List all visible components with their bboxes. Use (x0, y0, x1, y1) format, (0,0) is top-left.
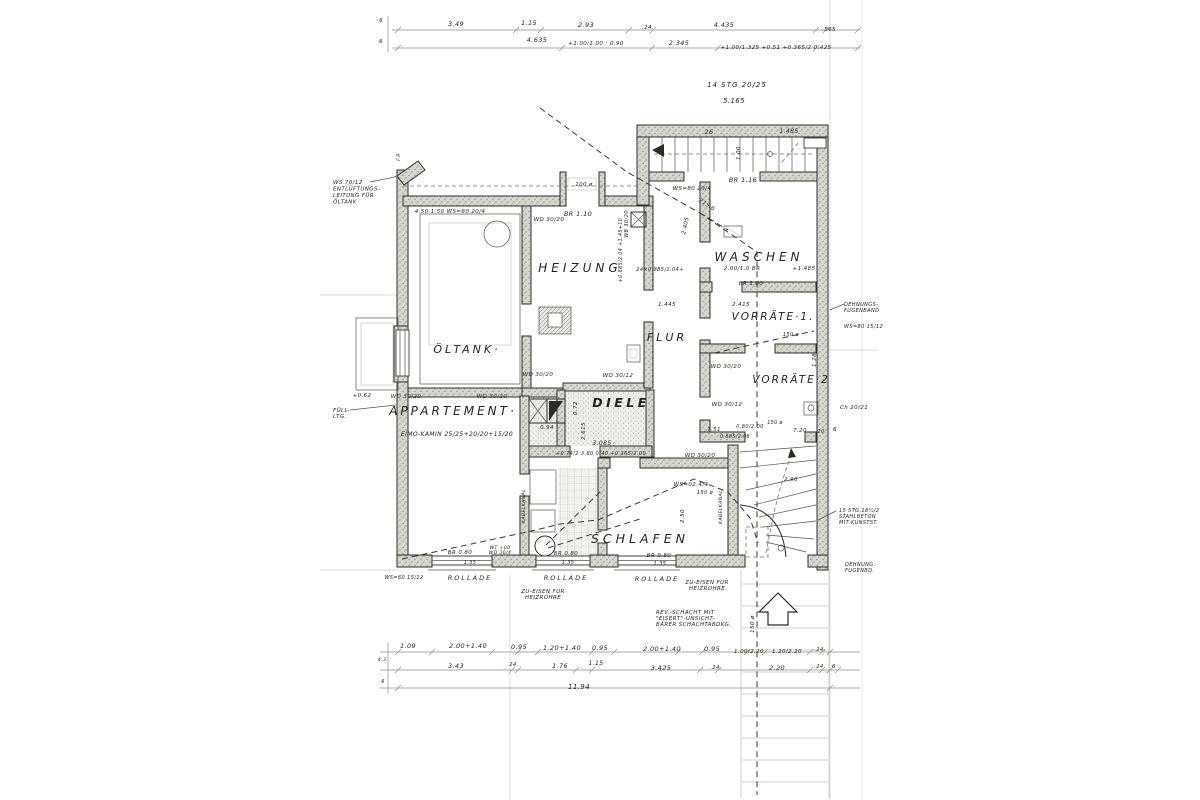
annotation-text: 4.50·1.50 WS=80 20/4 (415, 209, 486, 215)
annotation-text: 100 ø (575, 182, 593, 188)
annotation-text: 4.635 (527, 36, 548, 44)
note-kamin: EIMO-KAMIN 25/25+20/20+15/20 (401, 431, 513, 438)
bath-fixtures (530, 470, 556, 556)
room-label-flur: FLUR (647, 331, 687, 344)
annotation-text: 2.50 (680, 509, 686, 523)
annotation-text: DEHNUNG.FUGENBD. (845, 562, 876, 574)
annotation-text: .24. (710, 665, 721, 671)
room-label-oeltank: ÖLTANK· (433, 343, 500, 356)
annotation-text: WD 30/12 (712, 402, 743, 408)
annotation-text: 2.90 (784, 477, 798, 483)
annotation-text: 1.35 (562, 560, 575, 566)
annotation-text: .24. (814, 664, 825, 670)
annotation-text: 0.885/2.08 (720, 434, 750, 440)
annotation-text: 2.345 (669, 39, 690, 47)
note-zueisen-2: ZU-EISEN FURHEIZROHRE (684, 580, 729, 592)
room-label-vorraete-1: VORRÄTE·1. (732, 310, 815, 323)
annotation-text: 2.405 (681, 216, 691, 235)
annotation-text: +0.74/2 3.80 0.40 +0.365/2.00 (556, 451, 646, 457)
scanned-floor-plan-page: HEIZUNGWASCHENVORRÄTE·1.VORRÄTE·2FLURDIE… (0, 0, 1200, 800)
annotation-text: 2.20 (769, 664, 785, 672)
annotation-text: .20. (816, 429, 827, 435)
annotation-text: 1.35 (464, 560, 477, 566)
annotation-text: 3.425 (651, 664, 672, 672)
note-stair-right: 15 STG.18½/2STAHLBETONMIT KUNSTST. (839, 507, 880, 526)
annotation-text: 3.43 (448, 662, 464, 670)
room-label-diele: DIELE (592, 395, 650, 410)
annotation-text: +1.00/1.00 : 0.90 (568, 41, 623, 47)
annotation-text: 1.28 (812, 353, 818, 367)
annotation-text: 1.445 (658, 302, 676, 308)
annotation-text: 0.95 (592, 644, 608, 652)
annotation-text: 7.51 (707, 427, 721, 433)
room-label-heizung: HEIZUNG (538, 261, 621, 275)
annotation-text: 150 ø (697, 490, 714, 496)
flur-cabinet (627, 345, 640, 362)
shower (530, 470, 556, 504)
annotation-text: 26 (704, 128, 713, 136)
floor-drain-box (804, 402, 818, 415)
annotation-text: WD 30/20 (685, 453, 716, 459)
annotation-text: BR 0.80 (554, 551, 578, 557)
annotation-text: WD 30/20 (534, 217, 565, 223)
annotation-text: 6 (833, 427, 837, 433)
annotation-text: WD 30/20 (711, 364, 742, 370)
annotation-text: 6 (379, 18, 383, 24)
annotation-text: 3.085 (592, 440, 611, 447)
annotation-text: WS=80 20/4 (673, 186, 712, 192)
annotation-layer: HEIZUNGWASCHENVORRÄTE·1.VORRÄTE·2FLURDIE… (333, 18, 883, 691)
annotation-text: 2.93 (578, 21, 594, 29)
annotation-text: 24×0.885/2.04+ (636, 267, 683, 273)
annotation-text: WB 30/20 (624, 210, 630, 238)
oil-tank (420, 214, 520, 384)
annotation-text: WS=60 15/12 (384, 575, 423, 581)
annotation-text: .24. (814, 647, 825, 653)
note-rev-schacht: REV.-SCHACHT MIT"EISERT"-UNSICHT-BARER S… (656, 610, 731, 628)
room-label-waschen: WASCHEN (714, 250, 803, 264)
annotation-text: BR 1.00 (739, 281, 763, 287)
annotation-text: 6 (379, 39, 383, 45)
annotation-text: +1.00/1.325 +0.51 +0.365/2 0.425 (721, 45, 832, 51)
annotation-text: +0.885/2.04 +1.45+10 (618, 218, 624, 282)
annotation-text: BR 1.16 (729, 176, 757, 184)
note-fuell-ltg: FÜLL-LTG. (333, 407, 350, 420)
annotation-text: .24. (507, 662, 518, 668)
annotation-text: 1.15 (589, 660, 604, 667)
boiler (539, 307, 571, 334)
annotation-text: KABELKANAL (521, 489, 527, 523)
entrance-arrow (759, 593, 797, 625)
room-label-appartement: APPARTEMENT· (388, 404, 517, 418)
annotation-text: WS=80 15/12 (844, 324, 883, 330)
annotation-text: 7.20 (793, 428, 807, 434)
note-rollade-3: ROLLADE (635, 575, 679, 583)
annotation-text: 1.485 (779, 128, 798, 135)
annotation-text: 150 ø (767, 420, 783, 426)
annotation-text: KABELKANAL (718, 490, 724, 524)
room-label-vorraete-2: VORRÄTE·2 (752, 373, 830, 386)
annotation-text: 1.09 (400, 642, 416, 650)
annotation-text: WS=02.4/4 (674, 482, 709, 488)
note-dehnungsfuge: DEHNUNGS-FUGENBAND (844, 302, 879, 314)
annotation-text: 3.49 (448, 20, 464, 28)
annotation-text: 6 (381, 679, 385, 685)
annotation-text: 2.00/1.0 BR (724, 266, 761, 272)
annotation-text: 1.76 (552, 662, 568, 670)
annotation-text: WD 30/20 (523, 372, 554, 378)
annotation-text: 150 ø (783, 332, 800, 338)
annotation-text: 4.435 (714, 21, 735, 29)
annotation-text: 150 ø (750, 615, 756, 633)
annotation-text: .24. (642, 25, 654, 31)
annotation-text: WT +00WD 30/4 (489, 545, 512, 556)
annotation-text: Ch 20/21 (840, 405, 868, 411)
annotation-text: WD 30/20 (391, 394, 422, 400)
annotation-text: 0.95 (511, 643, 527, 651)
note-entlueftung: WS 70/12ENTLÜFTUNGS-LEITUNG FÜRÖLTANK (333, 180, 380, 206)
annotation-text: WD 30/12 (603, 373, 634, 379)
annotation-text: 1.20+1.40 (543, 644, 581, 652)
stair-direction-arrow (652, 144, 664, 157)
annotation-text: F.R (396, 153, 402, 161)
annotation-text: 0.80/2.00 (736, 424, 764, 430)
wc (535, 536, 555, 556)
annotation-text: .565 (822, 27, 836, 33)
annotation-text: BR 1.10 (564, 210, 592, 218)
note-rollade-1: ROLLADE (448, 574, 492, 582)
floor-plan-drawing: HEIZUNGWASCHENVORRÄTE·1.VORRÄTE·2FLURDIE… (0, 0, 1200, 800)
annotation-text: 0.72 (573, 401, 579, 415)
annotation-text: 1.00 (736, 146, 742, 160)
annotation-text: 2.415 (732, 302, 750, 308)
annotation-text: 4.3. (378, 657, 388, 663)
annotation-text: 0.94 (540, 425, 554, 431)
annotation-text: +0.62 (353, 393, 372, 399)
annotation-text: BR 0.80 (647, 553, 671, 559)
tank-manhole (484, 221, 510, 247)
annotation-text: 1.15 (521, 19, 537, 27)
annotation-text: 1.00/2.20 (734, 649, 764, 655)
note-stair-top: 14 STG 20/25 (707, 81, 767, 89)
annotation-text: 2.00+1.40 (643, 645, 681, 653)
annotation-text: 1.20/2.20 (772, 649, 802, 655)
annotation-text: WD 30/20 (477, 394, 508, 400)
note-rollade-2: ROLLADE (544, 574, 588, 582)
annotation-text: 2.615 (581, 422, 587, 440)
interior-stair-top (568, 137, 826, 190)
annotation-text: 2.00+1.40 (449, 642, 487, 650)
annotation-text: 1.35 (654, 561, 667, 567)
annotation-text: 11.94 (568, 683, 590, 691)
stair-side-door (804, 138, 826, 148)
annotation-text: 6 (832, 664, 836, 670)
annotation-text: +1.485 (793, 266, 816, 272)
note-zueisen-1: ZU-EISEN FURHEIZROHRE (520, 589, 565, 601)
annotation-text: 5.165 (723, 97, 745, 105)
annotation-text: BR 0.80 (448, 550, 472, 556)
room-label-schlafen: SCHLAFEN (591, 531, 689, 546)
annotation-text: 0.95 (704, 645, 720, 653)
